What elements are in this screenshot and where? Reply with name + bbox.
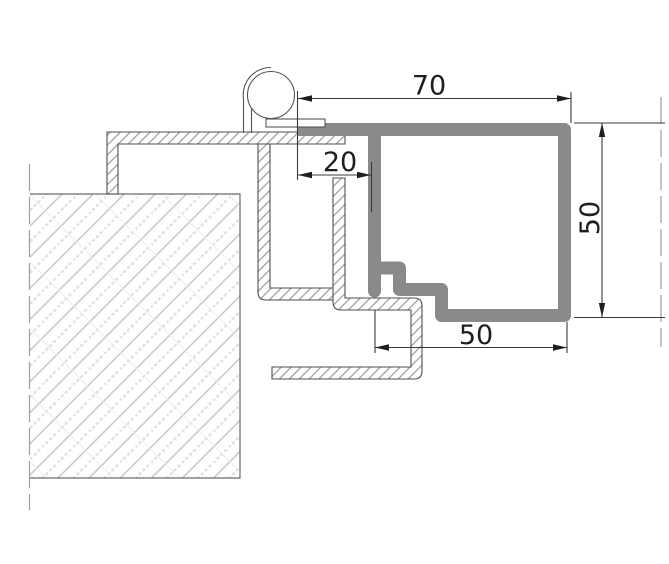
hinge (243, 67, 325, 133)
dimension-profile-height: 50 (574, 123, 665, 318)
arrowhead-down-icon (599, 303, 605, 317)
arrowhead-left-icon (298, 95, 312, 101)
wall-texture-overlay (31, 195, 240, 478)
drawing-canvas: 70 20 50 50 (0, 0, 669, 564)
dimension-label-50-bottom: 50 (459, 320, 493, 351)
arrowhead-right-icon (553, 344, 567, 350)
dimension-label-20: 20 (323, 147, 357, 178)
frame-flange-and-leg (107, 132, 345, 194)
arrowhead-up-icon (599, 123, 605, 137)
hinge-plate (266, 119, 325, 127)
dimension-label-70: 70 (412, 71, 446, 102)
dimension-label-50-height: 50 (575, 201, 606, 235)
hinge-roller (248, 72, 295, 119)
wall-section (30, 194, 240, 478)
frame-section-drawing: 70 20 50 50 (0, 0, 669, 564)
arrowhead-left-icon (375, 344, 389, 350)
arrowhead-left-icon (298, 172, 312, 178)
arrowhead-right-icon (557, 95, 571, 101)
